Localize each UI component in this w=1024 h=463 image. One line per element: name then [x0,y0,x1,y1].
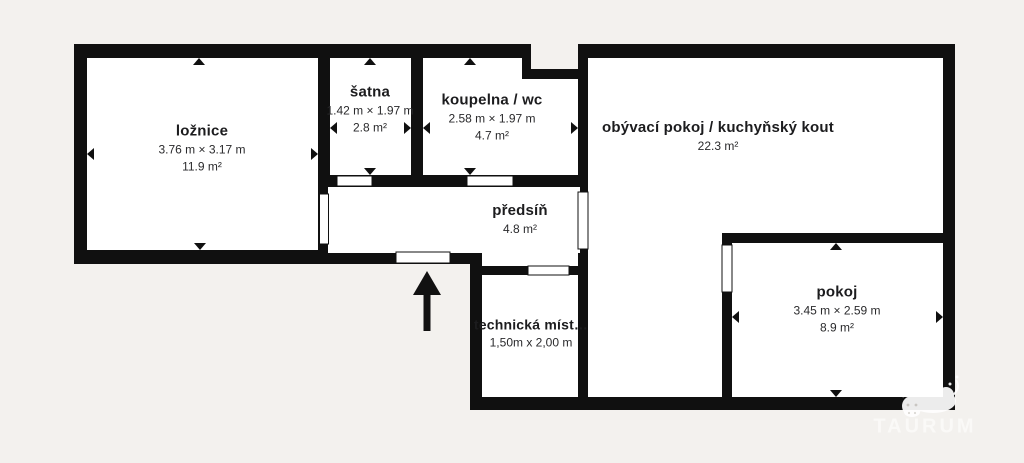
room-label-satna: šatna 1.42 m × 1.97 m 2.8 m² [326,84,413,135]
room-name: předsíň [492,202,548,219]
room-interior-predsin-b [482,253,578,266]
room-name: obývací pokoj / kuchyňský kout [602,119,834,136]
door-technicka [528,266,569,275]
room-interior-obyvaci-b [588,58,722,397]
room-area: 4.8 m² [492,222,548,236]
room-area: 8.9 m² [793,321,880,335]
room-label-koupelna-wc: koupelna / wc 2.58 m × 1.97 m 4.7 m² [442,92,543,143]
room-area: 22.3 m² [602,139,834,153]
watermark-text: TAURUM [873,416,976,439]
room-name: koupelna / wc [442,92,543,109]
floorplan-canvas: ložnice 3.76 m × 3.17 m 11.9 m² šatna 1.… [0,0,1024,463]
facade-notch [531,44,578,69]
door-koupelna [467,176,513,186]
room-dimensions: 3.76 m × 3.17 m [158,143,245,157]
entrance-arrow-icon [413,271,441,331]
room-area: 4.7 m² [442,129,543,143]
door-entry [396,252,450,263]
room-name: ložnice [158,123,245,140]
door-obyvaci [578,192,588,249]
room-name: pokoj [793,284,880,301]
room-label-obyvaci-pokoj: obývací pokoj / kuchyňský kout 22.3 m² [602,119,834,153]
room-area: 2.8 m² [326,121,413,135]
room-label-predsin: předsíň 4.8 m² [492,202,548,236]
room-label-technicka-mistnost: technická míst… 1,50m x 2,00 m [474,317,588,350]
door-satna [337,176,372,186]
room-dimensions: 1.42 m × 1.97 m [326,104,413,118]
room-dimensions: 3.45 m × 2.59 m [793,304,880,318]
room-label-loznice: ložnice 3.76 m × 3.17 m 11.9 m² [158,123,245,174]
room-name: technická míst… [474,317,588,333]
door-loznice [320,194,329,244]
door-pokoj [722,245,732,292]
room-dimensions: 1,50m x 2,00 m [474,336,588,350]
room-name: šatna [326,84,413,101]
room-area: 11.9 m² [158,160,245,174]
room-label-pokoj: pokoj 3.45 m × 2.59 m 8.9 m² [793,284,880,335]
room-dimensions: 2.58 m × 1.97 m [442,112,543,126]
